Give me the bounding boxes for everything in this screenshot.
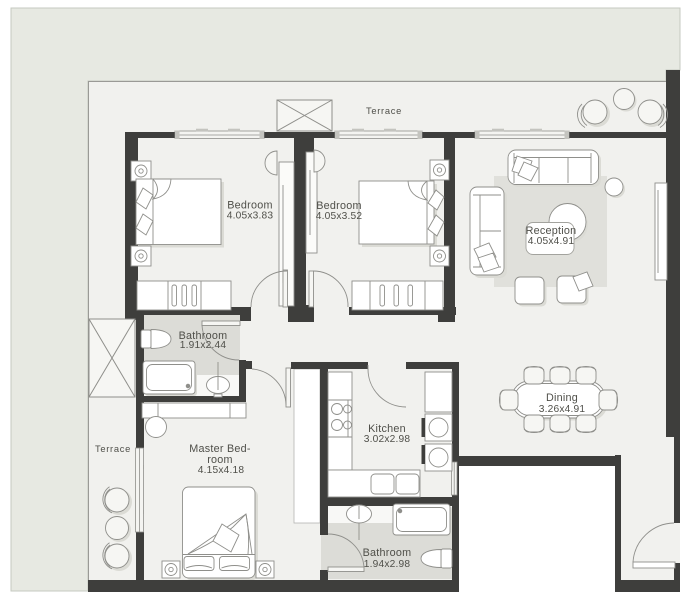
svg-text:4.05x3.83: 4.05x3.83 xyxy=(227,211,274,222)
svg-text:Dining: Dining xyxy=(546,392,578,404)
svg-text:3.02x2.98: 3.02x2.98 xyxy=(364,434,411,445)
svg-text:3.26x4.91: 3.26x4.91 xyxy=(539,404,586,415)
svg-text:Terrace: Terrace xyxy=(95,444,131,454)
svg-text:Bathroom: Bathroom xyxy=(363,547,412,559)
svg-text:1.94x2.98: 1.94x2.98 xyxy=(364,559,411,570)
svg-text:4.05x3.52: 4.05x3.52 xyxy=(316,211,363,222)
svg-text:4.15x4.18: 4.15x4.18 xyxy=(198,465,245,476)
svg-text:1.91x2.44: 1.91x2.44 xyxy=(180,340,227,351)
svg-text:Terrace: Terrace xyxy=(366,106,402,116)
svg-text:4.05x4.91: 4.05x4.91 xyxy=(528,236,575,247)
